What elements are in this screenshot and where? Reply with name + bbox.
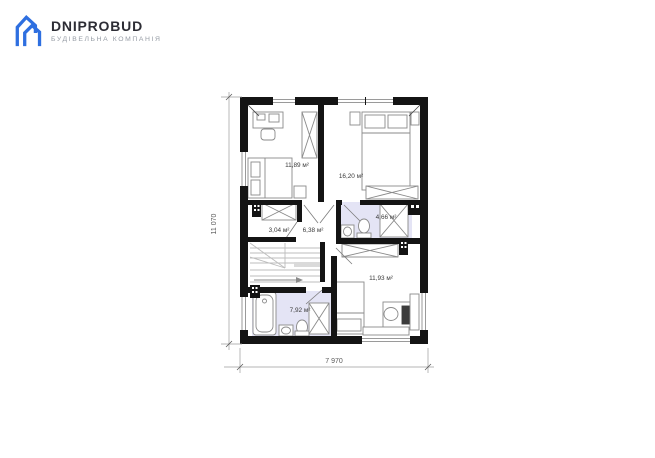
- brand-name: DNIPROBUD: [51, 19, 161, 34]
- wardrobe-icon: [262, 203, 296, 220]
- toilet-icon: [357, 219, 371, 238]
- area-label-bathroom-bottom: 7,92 м²: [290, 307, 311, 314]
- area-label-wardrobe: 3,04 м²: [269, 227, 290, 234]
- brand-logo: DNIPROBUD БУДІВЕЛЬНА КОМПАНІЯ: [14, 12, 161, 49]
- sink-icon: [341, 225, 354, 238]
- floor-plan: 11,89 м² 16,20 м² 3,04 м² 6,38 м² 4,66 м…: [0, 0, 655, 458]
- shower-icon: [309, 303, 329, 334]
- sink-icon: [279, 325, 293, 336]
- bed-icon: [334, 282, 364, 334]
- wardrobe-icon: [342, 244, 398, 257]
- stairs: [250, 243, 320, 283]
- chair-icon: [261, 129, 275, 140]
- nightstand-icon: [294, 186, 306, 198]
- area-label-bedroom-bottom: 11,93 м²: [369, 275, 393, 282]
- area-label-bedroom-top-left: 11,89 м²: [285, 162, 309, 169]
- brand-tagline: БУДІВЕЛЬНА КОМПАНІЯ: [51, 36, 161, 43]
- bathtub-icon: [253, 292, 276, 335]
- desk-icon: [383, 302, 412, 328]
- wardrobe-icon: [302, 112, 317, 158]
- dimension-height-label: 11 070: [211, 213, 218, 234]
- brand-text: DNIPROBUD БУДІВЕЛЬНА КОМПАНІЯ: [51, 19, 161, 43]
- wardrobe-icon: [366, 186, 418, 199]
- bed-icon: [362, 112, 410, 190]
- area-label-bathroom-top: 4,66 м²: [376, 214, 397, 221]
- dniprobud-house-icon: [14, 12, 42, 49]
- dimension-width-label: 7 970: [325, 358, 343, 365]
- vent-block-icon: [408, 202, 422, 215]
- area-label-hall: 6,38 м²: [303, 227, 324, 234]
- area-label-bedroom-top-right: 16,20 м²: [339, 173, 363, 180]
